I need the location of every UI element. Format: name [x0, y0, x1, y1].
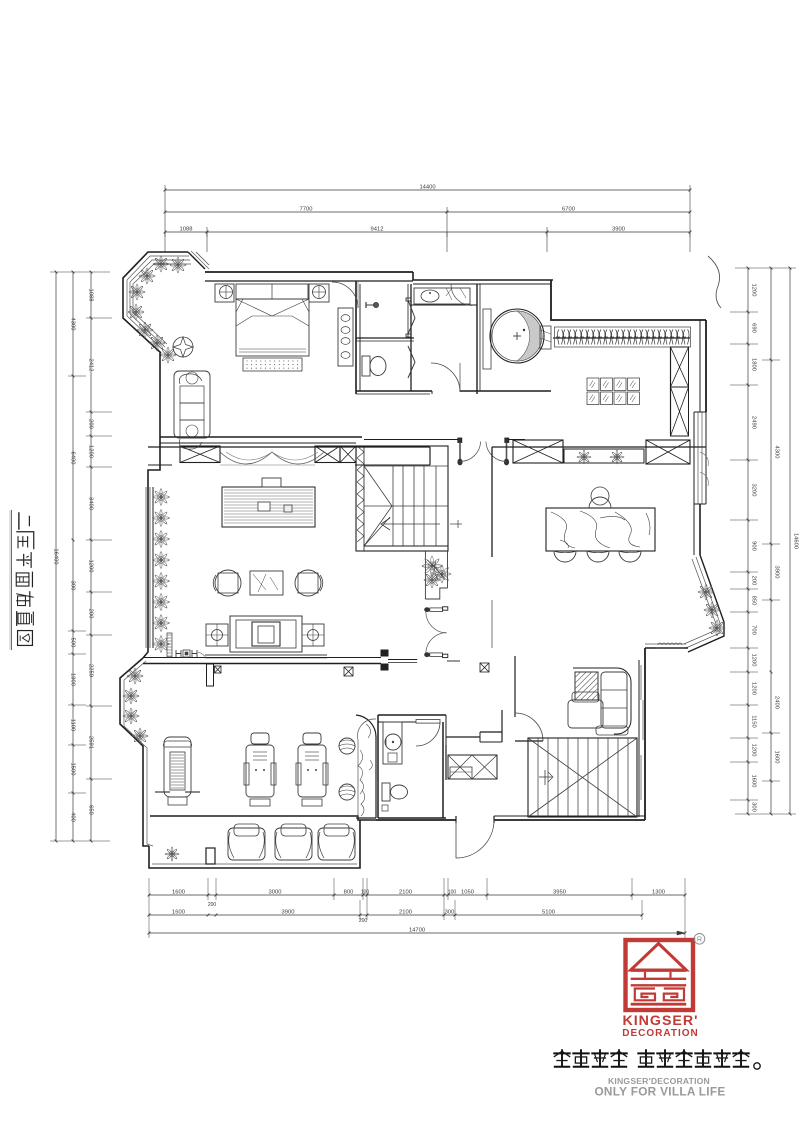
svg-text:800: 800	[344, 889, 354, 895]
svg-text:1200: 1200	[751, 744, 757, 757]
svg-text:1600: 1600	[172, 909, 185, 915]
svg-text:100: 100	[448, 889, 457, 895]
svg-text:9412: 9412	[371, 226, 384, 232]
svg-text:200: 200	[87, 419, 93, 429]
svg-text:300: 300	[445, 909, 455, 915]
svg-text:650: 650	[87, 805, 93, 815]
svg-text:14400: 14400	[419, 184, 435, 190]
svg-text:16400: 16400	[52, 548, 58, 564]
svg-text:3950: 3950	[553, 889, 566, 895]
svg-text:2490: 2490	[751, 416, 757, 429]
svg-text:14600: 14600	[793, 533, 799, 549]
svg-text:900: 900	[751, 541, 757, 551]
svg-text:1600: 1600	[172, 889, 185, 895]
svg-text:200: 200	[87, 609, 93, 619]
svg-text:6700: 6700	[562, 206, 575, 212]
svg-text:1600: 1600	[774, 751, 780, 764]
svg-text:1088: 1088	[180, 226, 193, 232]
svg-text:3000: 3000	[269, 889, 282, 895]
svg-text:2259: 2259	[87, 664, 93, 677]
svg-text:1088: 1088	[87, 289, 93, 302]
svg-text:4300: 4300	[69, 318, 75, 331]
svg-text:1200: 1200	[87, 560, 93, 573]
svg-text:400: 400	[69, 812, 75, 822]
svg-text:3900: 3900	[774, 566, 780, 579]
svg-text:1300: 1300	[652, 889, 665, 895]
svg-text:2400: 2400	[774, 696, 780, 709]
svg-text:6400: 6400	[69, 452, 75, 465]
svg-text:500: 500	[69, 638, 75, 648]
svg-text:3900: 3900	[612, 226, 625, 232]
svg-text:690: 690	[751, 323, 757, 333]
svg-text:1050: 1050	[461, 889, 474, 895]
svg-text:100: 100	[361, 889, 370, 895]
svg-text:1200: 1200	[751, 284, 757, 297]
svg-text:4300: 4300	[774, 446, 780, 459]
svg-text:14700: 14700	[409, 927, 425, 933]
svg-text:3200: 3200	[751, 484, 757, 497]
svg-text:3400: 3400	[87, 497, 93, 510]
svg-text:KINGSER': KINGSER'	[622, 1013, 698, 1029]
svg-text:7700: 7700	[300, 206, 313, 212]
svg-text:R: R	[697, 935, 702, 944]
svg-text:1900: 1900	[69, 673, 75, 686]
svg-text:850: 850	[751, 596, 757, 606]
svg-text:2100: 2100	[399, 909, 412, 915]
svg-text:5100: 5100	[542, 909, 555, 915]
svg-text:1100: 1100	[69, 719, 75, 731]
svg-text:1600: 1600	[751, 775, 757, 788]
svg-text:200: 200	[208, 902, 217, 908]
svg-text:1200: 1200	[751, 682, 757, 695]
svg-text:DECORATION: DECORATION	[622, 1028, 698, 1039]
svg-text:1800: 1800	[751, 358, 757, 371]
svg-text:1200: 1200	[751, 654, 757, 667]
svg-text:1200: 1200	[87, 445, 93, 458]
svg-text:200: 200	[751, 576, 757, 586]
svg-text:700: 700	[751, 625, 757, 635]
svg-text:2591: 2591	[87, 736, 93, 749]
svg-text:300: 300	[69, 581, 75, 591]
svg-text:1500: 1500	[69, 763, 75, 776]
svg-text:3900: 3900	[282, 909, 295, 915]
svg-text:2412: 2412	[87, 359, 93, 372]
svg-text:ONLY FOR VILLA LIFE: ONLY FOR VILLA LIFE	[594, 1085, 725, 1099]
svg-text:2100: 2100	[399, 889, 412, 895]
svg-text:1150: 1150	[751, 715, 757, 727]
svg-text:300: 300	[751, 802, 757, 812]
